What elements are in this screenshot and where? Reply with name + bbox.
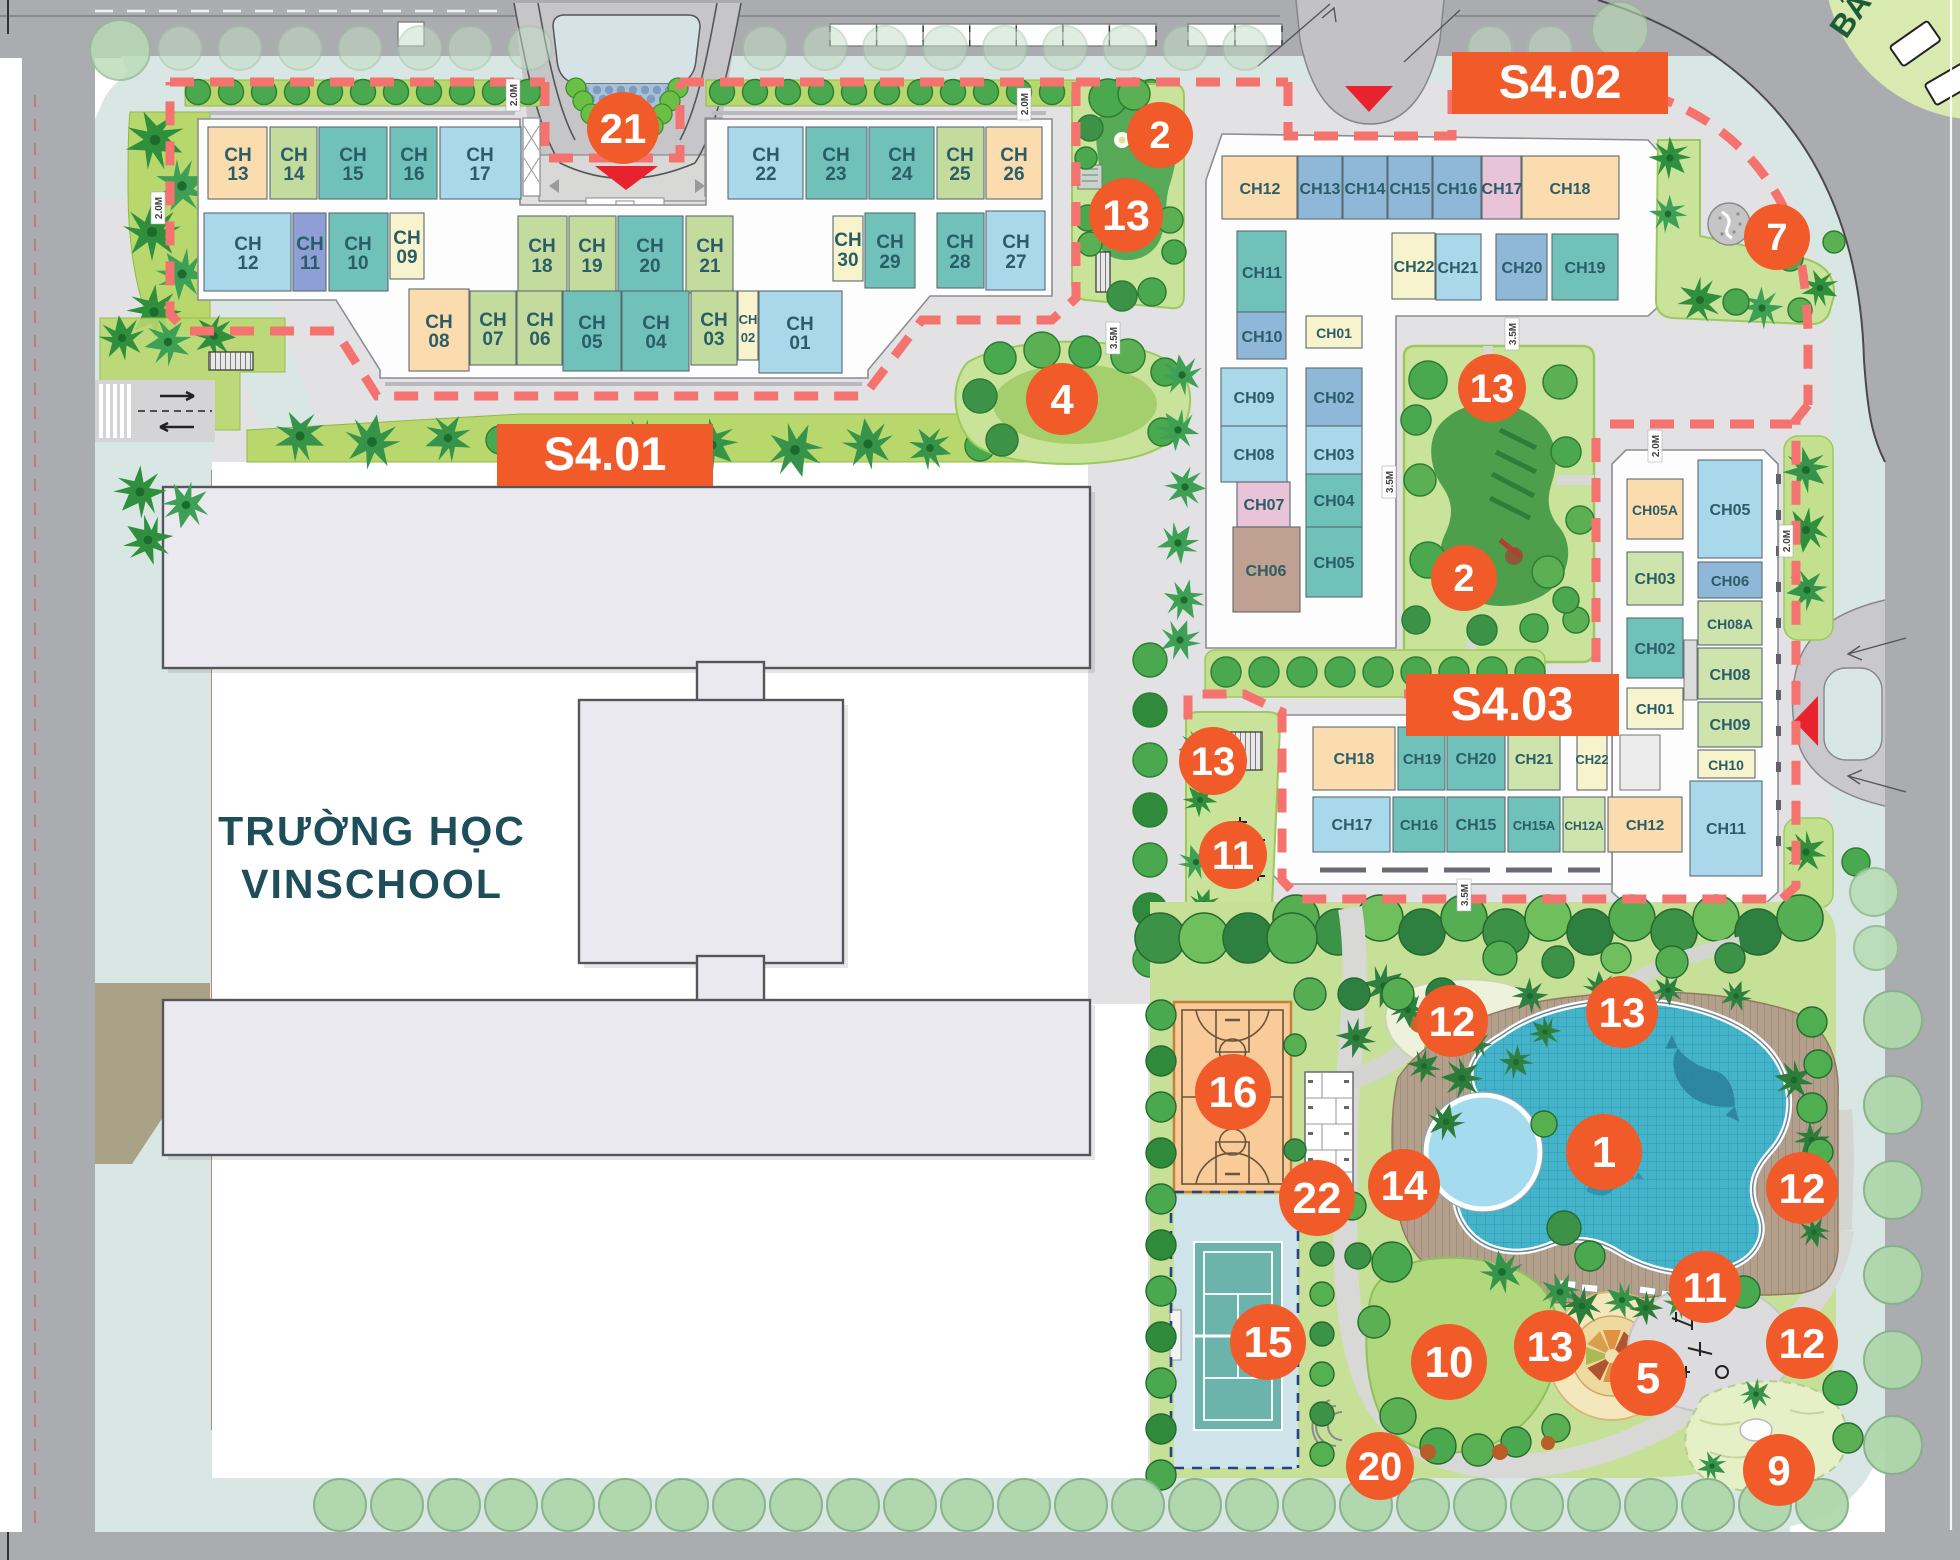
svg-text:30: 30	[837, 250, 858, 271]
svg-text:CH16: CH16	[1400, 817, 1438, 834]
svg-text:CH21: CH21	[1515, 751, 1553, 768]
svg-text:CH06: CH06	[1711, 573, 1749, 590]
svg-text:11: 11	[300, 253, 321, 274]
svg-text:16: 16	[403, 164, 424, 185]
svg-text:CH15: CH15	[1456, 817, 1497, 834]
svg-text:23: 23	[825, 164, 846, 185]
svg-text:2: 2	[1149, 115, 1170, 157]
svg-text:10: 10	[347, 253, 368, 274]
svg-text:27: 27	[1005, 252, 1026, 273]
svg-text:CH17: CH17	[1482, 181, 1523, 198]
svg-text:9: 9	[1767, 1447, 1790, 1494]
svg-text:CH: CH	[400, 145, 427, 166]
svg-text:CH13: CH13	[1300, 181, 1341, 198]
svg-text:2.0M: 2.0M	[1651, 435, 1662, 457]
svg-text:08: 08	[428, 331, 449, 352]
svg-text:3.5M: 3.5M	[1109, 327, 1120, 349]
svg-text:3.5M: 3.5M	[1385, 471, 1396, 493]
svg-text:4: 4	[1050, 376, 1074, 423]
svg-text:CH12: CH12	[1626, 817, 1664, 834]
svg-text:12: 12	[237, 253, 258, 274]
svg-text:CH: CH	[1002, 232, 1029, 253]
svg-text:CH: CH	[425, 312, 452, 333]
svg-text:14: 14	[1381, 1162, 1428, 1209]
svg-text:10: 10	[1425, 1338, 1474, 1387]
svg-text:CH22: CH22	[1394, 259, 1435, 276]
svg-text:2.0M: 2.0M	[1782, 530, 1793, 552]
svg-text:CH: CH	[1000, 145, 1027, 166]
svg-text:CH: CH	[393, 228, 420, 249]
svg-text:12: 12	[1429, 998, 1476, 1045]
svg-text:1: 1	[1592, 1128, 1616, 1177]
svg-text:19: 19	[581, 256, 602, 277]
svg-text:29: 29	[879, 252, 900, 273]
svg-text:CH22: CH22	[1575, 752, 1608, 767]
svg-text:CH11: CH11	[1242, 265, 1282, 282]
svg-text:CH10: CH10	[1242, 329, 1283, 346]
svg-text:CH18: CH18	[1550, 181, 1591, 198]
svg-text:13: 13	[1191, 740, 1236, 784]
svg-text:CH15A: CH15A	[1513, 818, 1556, 833]
svg-text:09: 09	[396, 247, 417, 268]
svg-text:CH: CH	[834, 230, 861, 251]
svg-text:20: 20	[1358, 1445, 1403, 1489]
svg-text:CH01: CH01	[1636, 701, 1674, 718]
svg-text:CH: CH	[696, 236, 723, 257]
svg-text:CH20: CH20	[1456, 751, 1497, 768]
svg-text:28: 28	[949, 252, 970, 273]
svg-text:CH: CH	[700, 310, 727, 331]
svg-text:3.5M: 3.5M	[1508, 323, 1519, 345]
svg-text:CH11: CH11	[1706, 821, 1746, 838]
svg-text:CH: CH	[296, 234, 323, 255]
svg-text:21: 21	[699, 256, 721, 277]
svg-text:2.0M: 2.0M	[509, 84, 520, 106]
svg-text:06: 06	[529, 329, 550, 350]
svg-text:18: 18	[531, 256, 552, 277]
svg-text:13: 13	[1599, 989, 1646, 1036]
svg-text:22: 22	[755, 164, 776, 185]
svg-text:CH: CH	[344, 234, 371, 255]
svg-text:CH06: CH06	[1246, 563, 1287, 580]
svg-text:TRƯỜNG HỌC: TRƯỜNG HỌC	[218, 808, 526, 854]
svg-text:CH14: CH14	[1345, 181, 1386, 198]
svg-text:03: 03	[703, 329, 724, 350]
svg-text:CH18: CH18	[1334, 751, 1375, 768]
svg-text:2: 2	[1453, 558, 1474, 600]
svg-text:S4.02: S4.02	[1499, 55, 1622, 108]
svg-text:07: 07	[482, 329, 503, 350]
svg-text:CH05: CH05	[1314, 555, 1355, 572]
svg-text:CH: CH	[636, 236, 663, 257]
svg-text:24: 24	[891, 164, 913, 185]
svg-text:CH: CH	[888, 145, 915, 166]
svg-text:CH09: CH09	[1710, 717, 1751, 734]
svg-text:20: 20	[639, 256, 660, 277]
svg-text:CH: CH	[752, 145, 779, 166]
svg-text:13: 13	[1527, 1323, 1574, 1370]
svg-text:CH: CH	[234, 234, 261, 255]
svg-text:CH: CH	[280, 145, 307, 166]
svg-text:CH: CH	[479, 310, 506, 331]
svg-text:CH04: CH04	[1314, 493, 1355, 510]
svg-text:CH16: CH16	[1437, 181, 1478, 198]
svg-text:7: 7	[1766, 217, 1787, 259]
svg-text:01: 01	[789, 333, 811, 354]
svg-text:CH: CH	[946, 145, 973, 166]
svg-text:CH: CH	[642, 313, 669, 334]
svg-text:CH17: CH17	[1332, 817, 1373, 834]
svg-text:CH19: CH19	[1565, 260, 1606, 277]
svg-text:CH: CH	[739, 312, 758, 327]
svg-text:CH: CH	[822, 145, 849, 166]
svg-text:CH: CH	[466, 145, 493, 166]
svg-text:11: 11	[1212, 834, 1254, 878]
svg-text:CH05: CH05	[1710, 502, 1751, 519]
svg-text:21: 21	[600, 105, 647, 152]
svg-text:CH08: CH08	[1234, 447, 1275, 464]
svg-text:CH19: CH19	[1403, 751, 1441, 768]
svg-text:CH21: CH21	[1438, 260, 1479, 277]
svg-text:CH08A: CH08A	[1707, 616, 1753, 632]
svg-text:17: 17	[469, 164, 490, 185]
svg-text:CH05A: CH05A	[1632, 502, 1678, 518]
svg-text:13: 13	[227, 164, 248, 185]
svg-text:CH01: CH01	[1316, 325, 1352, 341]
svg-text:CH: CH	[786, 314, 813, 335]
svg-text:14: 14	[283, 164, 305, 185]
svg-text:CH03: CH03	[1314, 447, 1355, 464]
svg-text:CH15: CH15	[1390, 181, 1431, 198]
svg-text:CH: CH	[876, 232, 903, 253]
svg-text:02: 02	[741, 330, 755, 345]
svg-text:12: 12	[1779, 1165, 1826, 1212]
svg-text:CH: CH	[528, 236, 555, 257]
svg-text:CH: CH	[224, 145, 251, 166]
svg-text:16: 16	[1209, 1068, 1258, 1117]
svg-text:CH09: CH09	[1234, 390, 1275, 407]
svg-text:13: 13	[1102, 192, 1150, 240]
svg-text:VINSCHOOL: VINSCHOOL	[241, 861, 503, 907]
svg-text:CH: CH	[946, 232, 973, 253]
svg-text:26: 26	[1003, 164, 1024, 185]
svg-text:15: 15	[1244, 1318, 1293, 1367]
svg-text:CH: CH	[578, 236, 605, 257]
svg-text:CH07: CH07	[1244, 497, 1285, 514]
svg-text:13: 13	[1470, 367, 1515, 411]
svg-text:22: 22	[1293, 1174, 1342, 1223]
svg-text:S4.03: S4.03	[1451, 677, 1574, 730]
svg-text:CH: CH	[578, 313, 605, 334]
svg-text:CH10: CH10	[1708, 757, 1744, 773]
svg-text:05: 05	[581, 332, 603, 353]
svg-text:CH02: CH02	[1314, 390, 1355, 407]
svg-text:CH20: CH20	[1502, 260, 1543, 277]
svg-text:CH08: CH08	[1710, 667, 1751, 684]
svg-text:2.0M: 2.0M	[154, 197, 165, 219]
svg-text:25: 25	[949, 164, 971, 185]
svg-text:5: 5	[1636, 1354, 1660, 1403]
svg-text:CH03: CH03	[1635, 571, 1676, 588]
svg-text:S4.01: S4.01	[544, 427, 667, 480]
svg-text:12: 12	[1779, 1320, 1826, 1367]
svg-text:15: 15	[342, 164, 364, 185]
svg-text:04: 04	[645, 332, 667, 353]
svg-text:CH: CH	[526, 310, 553, 331]
svg-text:CH: CH	[339, 145, 366, 166]
svg-text:CH02: CH02	[1635, 641, 1676, 658]
svg-text:2.0M: 2.0M	[1020, 93, 1031, 115]
svg-text:CH12A: CH12A	[1564, 819, 1604, 833]
svg-text:11: 11	[1683, 1264, 1727, 1311]
svg-text:3.5M: 3.5M	[1460, 884, 1471, 906]
svg-text:CH12: CH12	[1240, 181, 1281, 198]
